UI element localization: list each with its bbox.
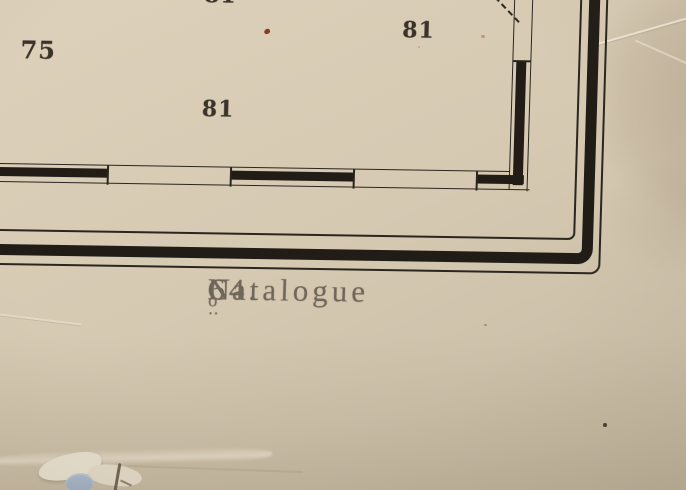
scanned-chart-page: 81 75 81 81 Catalogue No‥64. <box>0 0 686 490</box>
paper-vignette <box>0 0 686 490</box>
